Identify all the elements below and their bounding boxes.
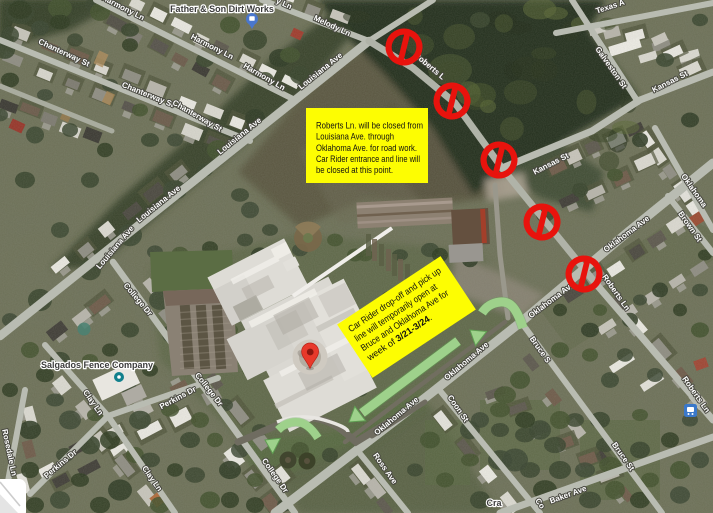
svg-text:Car Rider entrance and line wi: Car Rider entrance and line will: [316, 154, 420, 164]
svg-text:Father & Son Dirt Works: Father & Son Dirt Works: [170, 4, 274, 14]
svg-text:Cra: Cra: [486, 498, 502, 508]
svg-text:be closed at this point.: be closed at this point.: [316, 165, 393, 175]
svg-text:Louisiana Ave. through: Louisiana Ave. through: [316, 132, 394, 142]
svg-text:Roberts Ln. will be closed fro: Roberts Ln. will be closed from: [316, 121, 423, 131]
svg-text:Salgados Fence Company: Salgados Fence Company: [41, 360, 153, 370]
svg-text:Oklahoma Ave. for road work.: Oklahoma Ave. for road work.: [316, 143, 417, 153]
